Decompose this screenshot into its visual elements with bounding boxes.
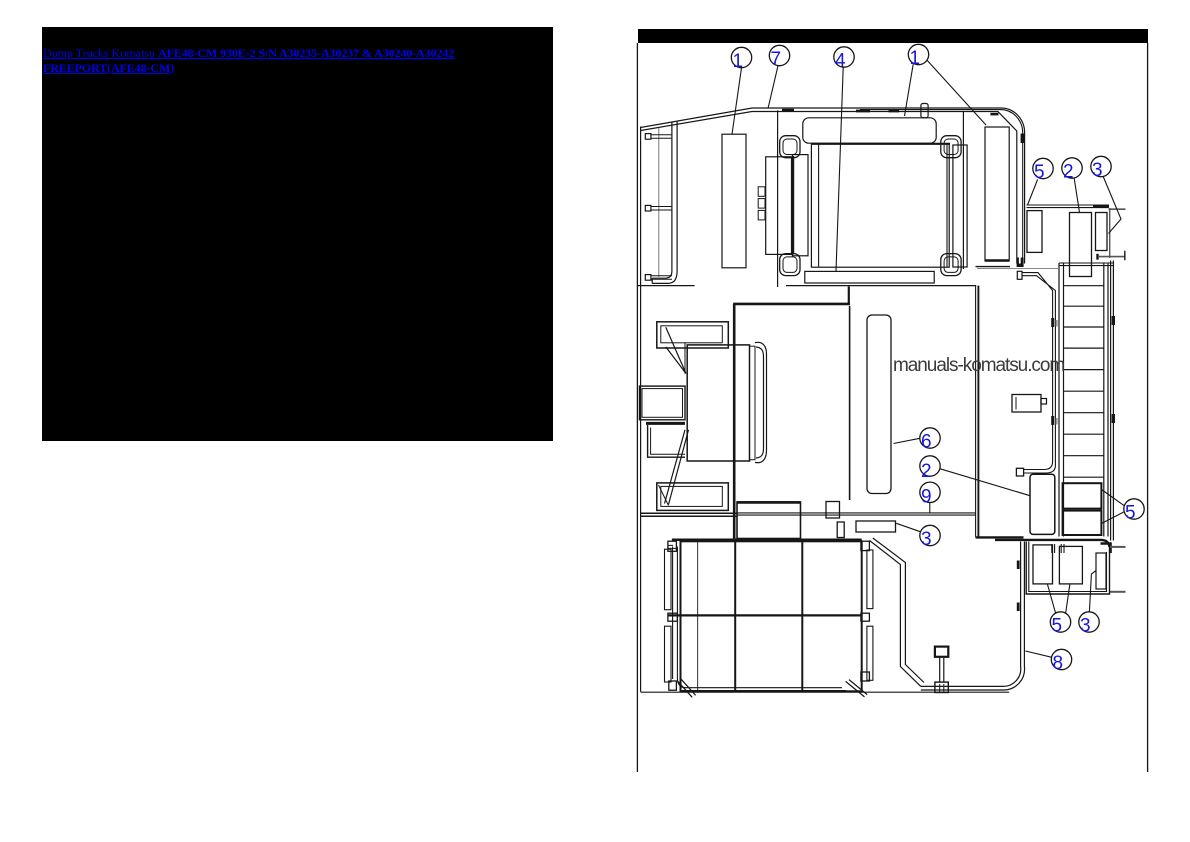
svg-text:manuals-komatsu.com: manuals-komatsu.com [893,355,1064,376]
svg-text:6: 6 [921,431,932,452]
svg-text:3: 3 [1080,615,1091,636]
svg-text:5: 5 [1052,615,1063,636]
svg-text:3: 3 [1092,160,1103,181]
svg-text:2: 2 [1063,161,1074,182]
svg-text:9: 9 [921,486,932,507]
svg-text:1: 1 [733,51,744,72]
svg-text:5: 5 [1125,502,1136,523]
svg-text:2: 2 [921,461,932,482]
svg-text:4: 4 [835,50,846,71]
svg-text:5: 5 [1034,162,1045,183]
svg-text:3: 3 [921,529,932,550]
svg-text:1: 1 [910,48,921,69]
svg-text:8: 8 [1053,653,1064,674]
svg-text:7: 7 [771,49,782,70]
